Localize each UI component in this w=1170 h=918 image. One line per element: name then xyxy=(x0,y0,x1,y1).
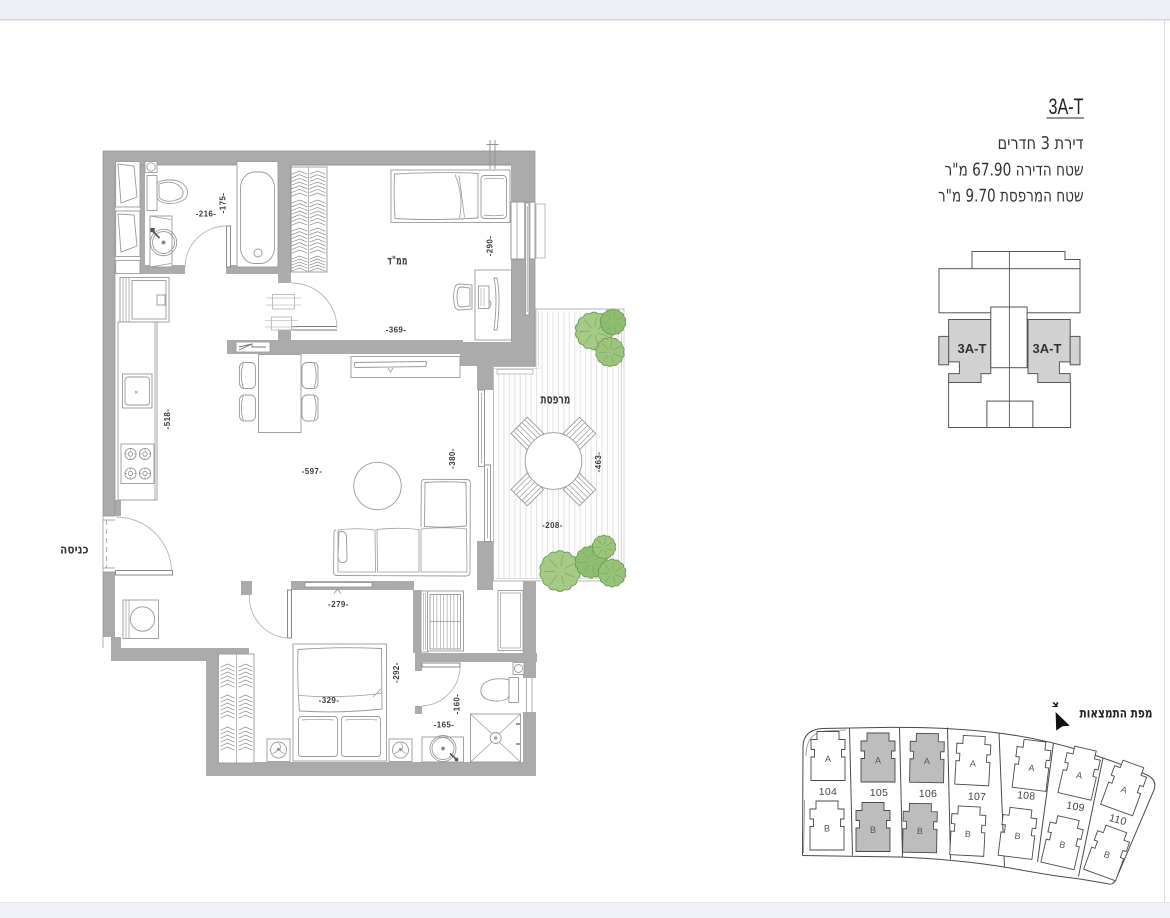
svg-text:A: A xyxy=(875,756,881,766)
svg-text:3A-T: 3A-T xyxy=(1049,94,1084,119)
svg-text:-290-: -290- xyxy=(486,236,495,257)
svg-text:-380-: -380- xyxy=(448,448,457,469)
svg-text:-463-: -463- xyxy=(594,452,603,473)
svg-text:-597-: -597- xyxy=(302,467,323,476)
svg-text:-329-: -329- xyxy=(319,696,340,705)
svg-text:B: B xyxy=(870,825,876,835)
svg-text:-279-: -279- xyxy=(328,600,349,609)
svg-text:-518-: -518- xyxy=(163,409,172,430)
svg-text:-160-: -160- xyxy=(453,694,462,715)
svg-text:-369-: -369- xyxy=(386,326,407,335)
svg-text:A: A xyxy=(924,756,930,766)
svg-text:-175-: -175- xyxy=(219,193,228,214)
svg-text:-216-: -216- xyxy=(196,210,217,219)
svg-text:106: 106 xyxy=(919,788,938,800)
svg-text:105: 105 xyxy=(870,787,888,799)
svg-text:-208-: -208- xyxy=(542,521,563,530)
svg-text:3A-T: 3A-T xyxy=(958,341,987,356)
svg-text:A: A xyxy=(970,758,977,768)
svg-text:3A-T: 3A-T xyxy=(1033,341,1062,356)
svg-text:B: B xyxy=(1014,831,1021,842)
svg-text:B: B xyxy=(917,826,923,836)
svg-text:104: 104 xyxy=(819,786,837,798)
svg-text:A: A xyxy=(1028,763,1035,774)
svg-text:B: B xyxy=(824,824,830,834)
svg-text:108: 108 xyxy=(1017,789,1036,803)
svg-text:-292-: -292- xyxy=(392,662,401,683)
svg-text:107: 107 xyxy=(968,791,987,804)
svg-text:B: B xyxy=(965,829,972,839)
svg-text:A: A xyxy=(825,754,831,764)
svg-text:-165-: -165- xyxy=(434,721,455,730)
